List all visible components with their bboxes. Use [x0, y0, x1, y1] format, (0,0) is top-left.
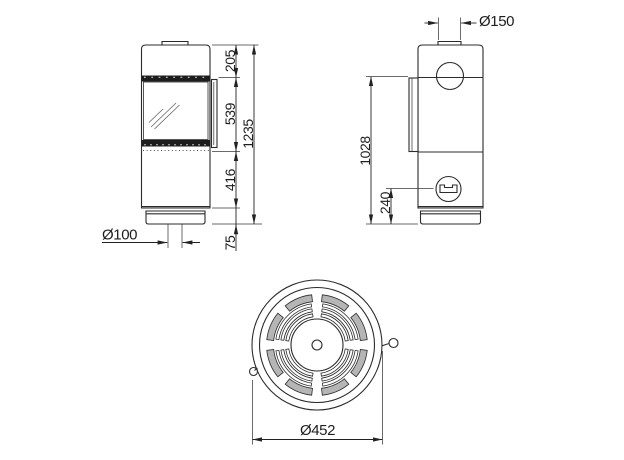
- top-grille-slots: [267, 295, 367, 395]
- top-rim: [260, 288, 375, 403]
- dim-floor-air-inlet: Ø100: [102, 227, 137, 244]
- glass-pane: [144, 82, 209, 140]
- bottom-vent-band: [142, 140, 211, 147]
- dim-top-section-height: 205: [222, 49, 238, 72]
- right-control-knob: [389, 339, 398, 348]
- flue-diameter-dim: Ø150: [425, 13, 515, 40]
- dim-rear-air-inlet-height: 240: [377, 191, 393, 214]
- drawing-canvas: 205 539 416 75 1235 Ø100 Ø150: [0, 0, 624, 460]
- top-center-hole: [312, 340, 322, 350]
- plinth-side: [421, 211, 481, 224]
- dim-body-diameter: Ø452: [300, 422, 335, 439]
- front-view: 205 539 416 75 1235 Ø100: [102, 42, 262, 252]
- dim-plinth-height: 75: [222, 235, 238, 250]
- dim-door-height: 539: [222, 102, 238, 125]
- plinth-front: [146, 211, 205, 224]
- top-inner-plate: [291, 319, 343, 371]
- top-view: Ø452: [250, 280, 399, 445]
- dim-total-height: 1235: [240, 119, 256, 149]
- left-control-knob: [250, 368, 258, 376]
- top-vent-band: [142, 76, 211, 82]
- top-outer-edge: [252, 280, 382, 410]
- dim-lower-section-height: 416: [222, 168, 238, 191]
- right-knob-stem: [382, 343, 390, 346]
- dim-flue-diameter: Ø150: [479, 13, 514, 30]
- door-edge-side: [409, 78, 418, 152]
- side-view: Ø150 1028 240: [357, 13, 514, 224]
- floor-air-inlet-callout: Ø100: [102, 224, 200, 248]
- stove-body-side: [418, 45, 483, 208]
- door-handle: [212, 80, 218, 148]
- dim-rear-flue-height: 1028: [357, 136, 373, 166]
